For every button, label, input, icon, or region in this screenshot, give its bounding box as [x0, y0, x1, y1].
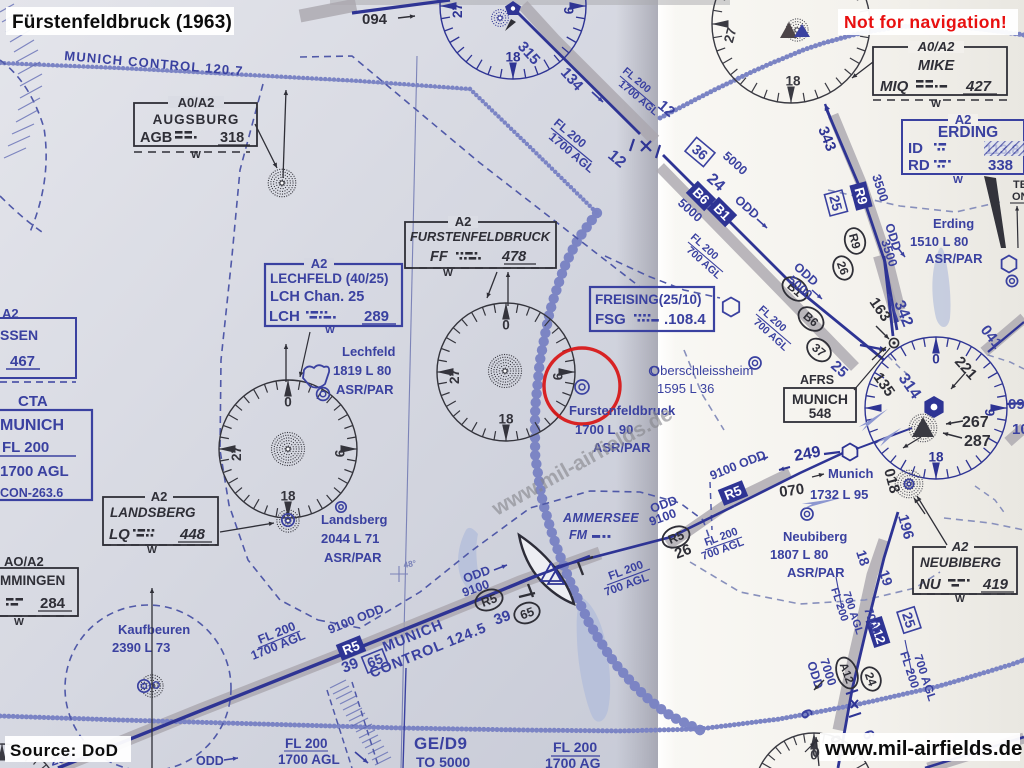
svg-text:FREISING(25/10): FREISING(25/10) — [595, 292, 702, 307]
svg-text:NEUBIBERG: NEUBIBERG — [920, 555, 1002, 570]
svg-text:478: 478 — [501, 249, 527, 265]
svg-text:548: 548 — [809, 406, 832, 421]
svg-text:LCH: LCH — [269, 308, 300, 325]
svg-text:2390 L 73: 2390 L 73 — [112, 640, 170, 655]
svg-text:W: W — [443, 267, 453, 279]
svg-text:ID: ID — [908, 140, 923, 157]
svg-text:SSEN: SSEN — [0, 327, 38, 343]
svg-text:FL 200: FL 200 — [553, 739, 597, 755]
svg-text:ASR/PAR: ASR/PAR — [324, 550, 382, 565]
svg-text:A2: A2 — [151, 489, 168, 504]
svg-text:338: 338 — [988, 157, 1013, 174]
svg-text:2044 L 71: 2044 L 71 — [321, 531, 379, 546]
svg-text:Neubiberg: Neubiberg — [783, 529, 847, 544]
svg-text:Kaufbeuren: Kaufbeuren — [118, 622, 190, 637]
svg-text:0: 0 — [502, 318, 510, 333]
svg-text:0: 0 — [284, 395, 292, 410]
svg-text:09: 09 — [1008, 396, 1024, 413]
svg-text:467: 467 — [10, 353, 35, 370]
svg-text:ASR/PAR: ASR/PAR — [925, 251, 983, 266]
svg-text:448: 448 — [179, 526, 206, 543]
svg-text:289: 289 — [364, 308, 389, 325]
svg-text:Oberschleissheim: Oberschleissheim — [650, 363, 753, 378]
svg-text:1732 L 95: 1732 L 95 — [810, 487, 868, 502]
svg-text:TO 5000: TO 5000 — [416, 754, 470, 768]
svg-text:18: 18 — [785, 74, 801, 89]
svg-text:27: 27 — [447, 369, 462, 384]
svg-text:Landsberg: Landsberg — [321, 512, 388, 527]
svg-text:MIKE: MIKE — [918, 58, 956, 74]
svg-text:1819 L 80: 1819 L 80 — [333, 363, 391, 378]
svg-text:Not for navigation!: Not for navigation! — [844, 12, 1007, 32]
svg-text:27: 27 — [450, 3, 465, 18]
svg-text:ASR/PAR: ASR/PAR — [336, 382, 394, 397]
svg-text:W: W — [14, 616, 24, 628]
svg-text:Source: DoD: Source: DoD — [10, 741, 118, 760]
svg-text:LCH Chan. 25: LCH Chan. 25 — [270, 289, 364, 305]
svg-text:www.mil-airfields.de: www.mil-airfields.de — [824, 737, 1022, 760]
svg-text:RD: RD — [908, 157, 930, 174]
svg-text:W: W — [325, 324, 335, 336]
svg-text:18: 18 — [498, 412, 514, 427]
svg-text:AMMERSEE: AMMERSEE — [562, 511, 639, 525]
svg-text:FURSTENFELDBRUCK: FURSTENFELDBRUCK — [410, 229, 552, 244]
svg-text:AFRS: AFRS — [800, 373, 834, 387]
svg-text:TE: TE — [1013, 179, 1024, 191]
svg-text:27: 27 — [229, 446, 244, 461]
svg-text:284: 284 — [40, 595, 66, 612]
svg-text:287: 287 — [964, 433, 991, 450]
svg-text:FF: FF — [430, 249, 449, 265]
svg-text:A0/A2: A0/A2 — [178, 95, 215, 110]
svg-text:.108.4: .108.4 — [664, 311, 706, 328]
svg-text:FL 200: FL 200 — [285, 736, 328, 751]
svg-text:ASR/PAR: ASR/PAR — [787, 565, 845, 580]
svg-text:W: W — [147, 544, 157, 556]
svg-text:Fürstenfeldbruck (1963): Fürstenfeldbruck (1963) — [12, 12, 232, 33]
svg-text:1807 L 80: 1807 L 80 — [770, 547, 828, 562]
svg-text:FL 200: FL 200 — [2, 439, 49, 456]
svg-text:CON-263.6: CON-263.6 — [0, 486, 63, 500]
svg-text:LANDSBERG: LANDSBERG — [110, 505, 196, 520]
svg-text:Erding: Erding — [933, 216, 974, 231]
svg-text:GE/D9: GE/D9 — [414, 734, 468, 753]
svg-text:MMINGEN: MMINGEN — [0, 573, 65, 588]
svg-text:18: 18 — [280, 489, 296, 504]
svg-text:9: 9 — [550, 373, 565, 381]
svg-text:NU: NU — [919, 576, 942, 593]
svg-text:1700 AGL: 1700 AGL — [0, 463, 69, 480]
svg-text:419: 419 — [982, 576, 1009, 593]
svg-text:1510 L 80: 1510 L 80 — [910, 234, 968, 249]
svg-text:A0/A2: A0/A2 — [917, 39, 956, 54]
svg-text:W: W — [931, 98, 941, 110]
svg-text:427: 427 — [965, 78, 992, 95]
svg-text:W: W — [953, 174, 963, 186]
svg-text:9: 9 — [332, 450, 347, 458]
svg-text:1700 AGL: 1700 AGL — [278, 752, 340, 767]
svg-text:MIQ: MIQ — [880, 78, 909, 95]
svg-text:FM: FM — [569, 528, 588, 542]
svg-text:AUGSBURG: AUGSBURG — [153, 112, 240, 127]
svg-text:1595 L 36: 1595 L 36 — [657, 381, 714, 396]
svg-text:9: 9 — [561, 7, 576, 15]
svg-text:MUNICH: MUNICH — [792, 391, 848, 407]
svg-text:W: W — [955, 593, 965, 605]
svg-text:W: W — [191, 149, 201, 161]
svg-text:094: 094 — [362, 11, 388, 28]
svg-text:ON: ON — [1012, 191, 1024, 203]
svg-text:A2: A2 — [951, 539, 969, 554]
svg-text:267: 267 — [962, 414, 989, 431]
svg-text:070: 070 — [778, 481, 805, 501]
svg-text:AGB: AGB — [140, 130, 172, 146]
svg-text:AO/A2: AO/A2 — [4, 554, 44, 569]
svg-text:318: 318 — [220, 130, 244, 146]
svg-text:MUNICH: MUNICH — [0, 417, 64, 434]
svg-text:A2: A2 — [455, 214, 472, 229]
svg-text:CTA: CTA — [18, 393, 48, 410]
svg-text:Munich: Munich — [828, 466, 874, 481]
svg-text:LQ: LQ — [109, 526, 130, 543]
svg-text:A2: A2 — [2, 306, 19, 321]
svg-text:0: 0 — [932, 352, 940, 367]
svg-text:1700 AG: 1700 AG — [545, 755, 601, 768]
svg-text:Lechfeld: Lechfeld — [342, 344, 396, 359]
svg-text:FSG: FSG — [595, 311, 626, 328]
svg-text:A2: A2 — [311, 256, 328, 271]
svg-text:ERDING: ERDING — [938, 124, 998, 141]
svg-text:18: 18 — [928, 450, 944, 465]
svg-text:LECHFELD (40/25): LECHFELD (40/25) — [270, 271, 389, 286]
svg-text:10: 10 — [1012, 421, 1024, 438]
svg-text:ODD: ODD — [196, 754, 224, 768]
